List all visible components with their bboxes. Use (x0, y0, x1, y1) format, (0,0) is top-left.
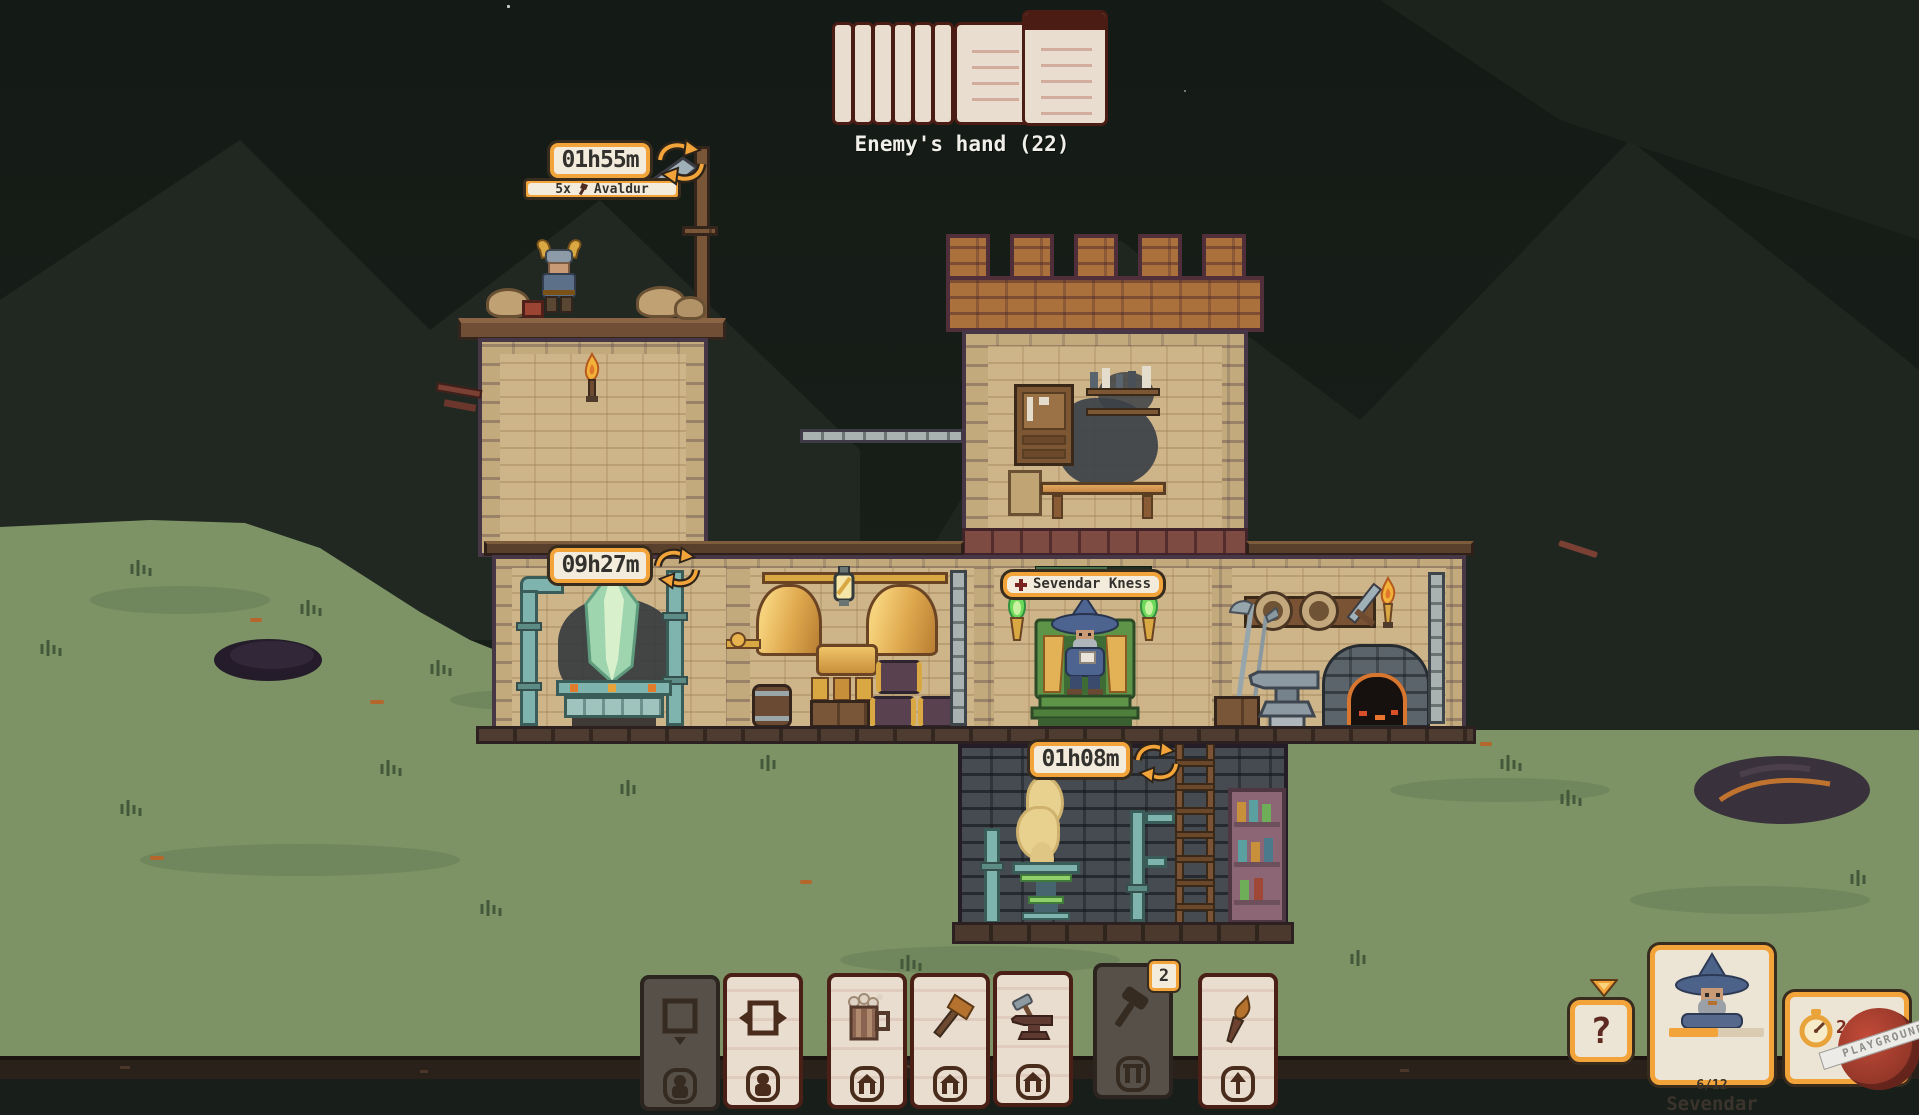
brew-kettle (866, 584, 938, 656)
brew-kettle (756, 584, 822, 656)
help-label: ? (1575, 1005, 1627, 1059)
production-unit: Avaldur (594, 182, 649, 197)
torch-icon (1213, 993, 1263, 1047)
workshop-cabinet (1014, 384, 1074, 466)
barrel (752, 684, 792, 728)
lantern-icon (830, 566, 858, 616)
plus-icon (1015, 579, 1027, 591)
forge-furnace (1322, 644, 1430, 728)
hand-card-torch[interactable] (1198, 973, 1278, 1109)
tower-merlon (1202, 234, 1246, 282)
enemy-card-back (912, 22, 934, 125)
swap-arrows-icon[interactable] (1130, 740, 1184, 784)
room-frame-icon (657, 995, 703, 1049)
mast-crossbar (682, 226, 718, 236)
axe-icon (925, 993, 975, 1045)
room-expand-icon (738, 993, 788, 1043)
enemy-card-back (852, 22, 874, 125)
table-leg (1142, 495, 1153, 519)
building-icon (1015, 1063, 1051, 1101)
person-icon (662, 1067, 698, 1105)
enemy-card-back (932, 22, 954, 125)
mallet-icon (1108, 983, 1158, 1037)
anvil-icon (1008, 991, 1058, 1043)
roof-lip (1246, 541, 1474, 556)
workshop-shelf (1086, 408, 1160, 416)
pipe (984, 828, 1000, 924)
pipe (520, 590, 538, 726)
tower-merlon (1074, 234, 1118, 282)
hand-card-expand-room[interactable] (723, 973, 803, 1109)
timer-crystal[interactable]: 09h27m (550, 548, 650, 583)
clock-icon (1798, 1009, 1834, 1049)
beer-mug-icon (842, 993, 892, 1045)
timer-rooftop[interactable]: 01h55m (550, 143, 650, 178)
tower-corbel (946, 276, 1264, 332)
shelf-bottles (1088, 366, 1164, 388)
pipe (1130, 810, 1145, 922)
torch-icon (1378, 576, 1398, 652)
hand-card-anvil[interactable] (993, 971, 1073, 1107)
throne-with-wizard[interactable] (1030, 592, 1140, 732)
basement-bookshelf[interactable] (1228, 788, 1286, 924)
table-leg (1052, 495, 1063, 519)
castle-foundation (476, 726, 1476, 744)
pipe (1145, 812, 1175, 824)
tower-merlon (1138, 234, 1182, 282)
tower-floor (962, 528, 1248, 556)
metal-walkway (800, 429, 964, 443)
crate (810, 700, 870, 728)
chevron-down-icon (1590, 978, 1618, 998)
wall-ladder (1428, 572, 1445, 724)
nameplate-text: Sevendar Kness (1033, 577, 1151, 592)
tower-merlon (1010, 234, 1054, 282)
keg (876, 660, 922, 694)
enemy-hand-label: Enemy's hand (22) (812, 132, 1112, 156)
enemy-card-raised (1022, 10, 1108, 126)
torch-icon (582, 352, 602, 414)
timer-text: 01h08m (1041, 746, 1118, 772)
workshop-steps (1008, 470, 1042, 516)
wizard-portrait (1664, 952, 1760, 1028)
anvil (1248, 666, 1324, 730)
swap-arrows-icon[interactable] (650, 546, 704, 590)
pillars-icon (1115, 1055, 1151, 1093)
production-count: 5x (555, 182, 571, 197)
workshop-table (1040, 482, 1166, 495)
hp-bar (1669, 1028, 1764, 1037)
enemy-card-back (872, 22, 894, 125)
timer-text: 09h27m (561, 552, 638, 578)
keg (870, 696, 916, 728)
burrow-hole (214, 639, 322, 681)
dark-rock (1694, 756, 1870, 824)
building-icon (849, 1065, 885, 1103)
swap-arrows-icon[interactable] (652, 138, 710, 186)
wall-ladder (950, 570, 967, 726)
tower-merlon (946, 234, 990, 282)
basement-floor (952, 922, 1294, 944)
up-arrow-icon (1220, 1065, 1256, 1103)
axe-mini-icon (576, 183, 589, 196)
help-button[interactable]: ? (1570, 1000, 1632, 1062)
pipe (1145, 856, 1167, 868)
character-name: Sevendar (1655, 1093, 1769, 1115)
enemy-card-back (832, 22, 854, 125)
hp-text: 6/12 (1655, 1078, 1769, 1093)
hand-card-axe[interactable] (910, 973, 990, 1109)
beer-mugs (810, 676, 880, 702)
wish-fountain[interactable] (1012, 862, 1080, 920)
mana-crystal[interactable] (570, 568, 654, 692)
person-icon (745, 1065, 781, 1103)
kettle-manifold (816, 644, 878, 676)
hand-card-beer[interactable] (827, 973, 907, 1109)
enemy-card-back (892, 22, 914, 125)
building-icon (932, 1065, 968, 1103)
card-count-badge: 2 (1149, 961, 1179, 991)
crystal-pedestal (556, 680, 672, 728)
character-nameplate: Sevendar Kness (1003, 572, 1163, 597)
round-shield (1302, 594, 1336, 628)
sandbag (674, 296, 706, 320)
viking-defender[interactable] (516, 238, 606, 324)
workshop-shelf (1086, 388, 1160, 396)
hand-card-build-room[interactable] (640, 975, 720, 1111)
character-panel[interactable]: 6/12 Sevendar (1650, 945, 1774, 1085)
wall-valve (726, 630, 762, 652)
timer-text: 01h55m (561, 147, 638, 173)
game-scene: 01h55m 5x Avaldur 09h27m 01h08m (0, 0, 1919, 1079)
timer-basement[interactable]: 01h08m (1030, 742, 1130, 777)
